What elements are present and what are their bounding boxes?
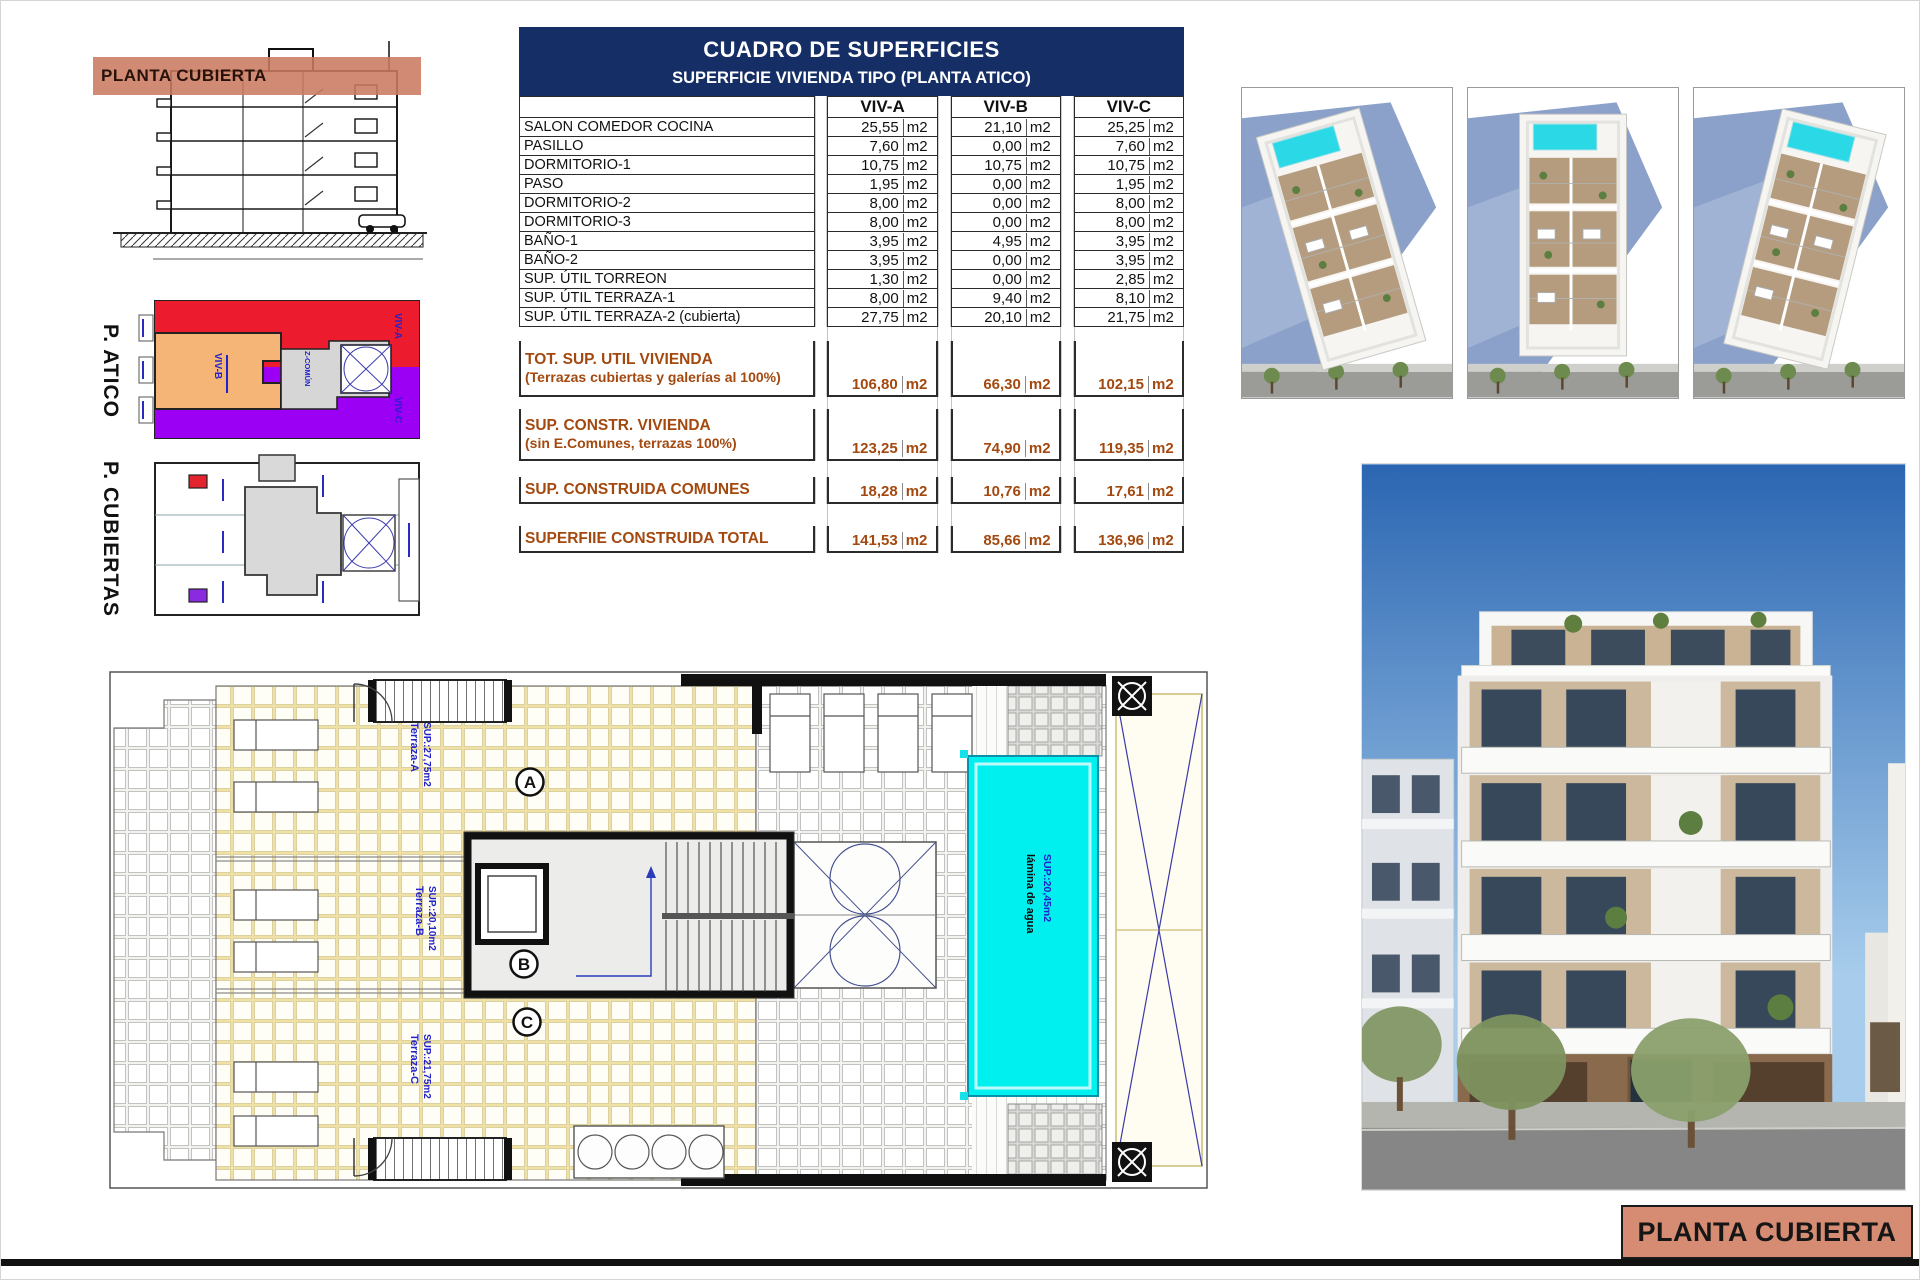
summary-value-viv-c: 102,15m2 — [1074, 341, 1184, 397]
summary-value-viv-c: 136,96m2 — [1074, 526, 1184, 553]
row-value-viv-a: 3,95m2 — [827, 232, 937, 251]
column-header-viv-a: VIV-A — [827, 96, 937, 118]
row-value-viv-a: 3,95m2 — [827, 251, 937, 270]
row-label: DORMITORIO-3 — [519, 213, 815, 232]
stair-top — [368, 680, 512, 722]
sidewalk — [1362, 1102, 1905, 1130]
row-value-viv-b: 0,00m2 — [951, 175, 1061, 194]
facade-render-art — [1362, 464, 1905, 1190]
summary-value-viv-b: 10,76m2 — [951, 477, 1061, 504]
table-row: SALON COMEDOR COCINA25,55m221,10m225,25m… — [519, 118, 1184, 137]
row-value-viv-a: 8,00m2 — [827, 213, 937, 232]
table-row: DORMITORIO-38,00m20,00m28,00m2 — [519, 213, 1184, 232]
summary-label: SUP. CONSTRUIDA COMUNES — [519, 477, 815, 504]
row-value-viv-b: 21,10m2 — [951, 118, 1061, 137]
terraza-a-name: Terraza-A — [408, 722, 420, 772]
section-drawing: PLANTA CUBIERTA — [93, 29, 433, 279]
row-value-viv-c: 21,75m2 — [1074, 308, 1184, 327]
summary-value-viv-a: 141,53m2 — [827, 526, 937, 553]
row-value-viv-b: 0,00m2 — [951, 270, 1061, 289]
row-label: SUP. ÚTIL TERRAZA-1 — [519, 289, 815, 308]
letter-a: A — [524, 773, 536, 792]
summary-value-viv-c: 119,35m2 — [1074, 409, 1184, 461]
table-row: DORMITORIO-28,00m20,00m28,00m2 — [519, 194, 1184, 213]
bottom-rule — [1, 1259, 1920, 1266]
keyplan-atico-art: VIV-A VIV-B VIV-C Z-COMÚN — [127, 297, 433, 445]
sheet-title-box: PLANTA CUBIERTA — [1621, 1205, 1913, 1259]
table-header-row: VIV-AVIV-BVIV-C — [519, 96, 1184, 118]
row-value-viv-c: 3,95m2 — [1074, 232, 1184, 251]
row-value-viv-a: 8,00m2 — [827, 194, 937, 213]
table-row: SUP. ÚTIL TERRAZA-18,00m29,40m28,10m2 — [519, 289, 1184, 308]
summary-label: SUPERFIIE CONSTRUIDA TOTAL — [519, 526, 815, 553]
table-summary-row: TOT. SUP. UTIL VIVIENDA(Terrazas cubiert… — [519, 341, 1184, 397]
terraza-a-sup: SUP.:27,75m2 — [421, 722, 432, 787]
summary-value-viv-b: 66,30m2 — [951, 341, 1061, 397]
row-value-viv-c: 2,85m2 — [1074, 270, 1184, 289]
row-label: DORMITORIO-1 — [519, 156, 815, 175]
table-row: PASILLO7,60m20,00m27,60m2 — [519, 137, 1184, 156]
row-label: PASO — [519, 175, 815, 194]
table-summary-row: SUP. CONSTRUIDA COMUNES18,28m210,76m217,… — [519, 477, 1184, 504]
table-title: CUADRO DE SUPERFICIES — [519, 33, 1184, 69]
keyplan-cubiertas-art — [127, 453, 433, 625]
column-header-viv-b: VIV-B — [951, 96, 1061, 118]
row-value-viv-b: 0,00m2 — [951, 194, 1061, 213]
table-row: BAÑO-13,95m24,95m23,95m2 — [519, 232, 1184, 251]
row-value-viv-c: 8,10m2 — [1074, 289, 1184, 308]
row-value-viv-a: 27,75m2 — [827, 308, 937, 327]
roof-drain-bottom — [1112, 1142, 1152, 1182]
row-value-viv-c: 7,60m2 — [1074, 137, 1184, 156]
road — [1362, 1128, 1905, 1190]
summary-label: TOT. SUP. UTIL VIVIENDA(Terrazas cubiert… — [519, 341, 815, 397]
pool-name: lámina de agua — [1024, 854, 1036, 934]
column-header-viv-c: VIV-C — [1074, 96, 1184, 118]
row-label: BAÑO-1 — [519, 232, 815, 251]
row-label: PASILLO — [519, 137, 815, 156]
letter-b: B — [518, 955, 530, 974]
summary-label: SUP. CONSTR. VIVIENDA(sin E.Comunes, ter… — [519, 409, 815, 461]
row-label: BAÑO-2 — [519, 251, 815, 270]
table-spacer — [519, 327, 1184, 341]
pool-sup: SUP.:20,45m2 — [1041, 854, 1053, 922]
zone-label-viv-a: VIV-A — [392, 313, 403, 339]
roof-render-3 — [1693, 87, 1905, 399]
roof-drain-top — [1112, 676, 1152, 716]
stair-bottom — [368, 1138, 512, 1180]
row-label: DORMITORIO-2 — [519, 194, 815, 213]
row-value-viv-b: 0,00m2 — [951, 251, 1061, 270]
floor-1 — [1462, 682, 1831, 774]
terraza-b-name: Terraza-B — [413, 886, 425, 936]
sheet-title-label: PLANTA CUBIERTA — [1638, 1217, 1897, 1248]
table-summary-row: SUP. CONSTR. VIVIENDA(sin E.Comunes, ter… — [519, 409, 1184, 461]
table-spacer — [519, 397, 1184, 409]
row-value-viv-b: 4,95m2 — [951, 232, 1061, 251]
terraza-c-sup: SUP.:21,75m2 — [421, 1034, 432, 1099]
section-band-label: PLANTA CUBIERTA — [101, 66, 267, 86]
row-value-viv-a: 8,00m2 — [827, 289, 937, 308]
roof-floorplan: Terraza-A SUP.:27,75m2 Terraza-B SUP.:20… — [106, 664, 1211, 1196]
summary-value-viv-c: 17,61m2 — [1074, 477, 1184, 504]
roof-floorplan-art: Terraza-A SUP.:27,75m2 Terraza-B SUP.:20… — [106, 664, 1211, 1196]
planters — [574, 1126, 724, 1178]
plan-sheet: PLANTA CUBIERTA P. ATICO VIV-A VIV-B — [0, 0, 1920, 1280]
terraza-b-sup: SUP.:20,10m2 — [426, 886, 437, 951]
uncovered-terrace-strip — [114, 700, 216, 1160]
table-summary-row: SUPERFIIE CONSTRUIDA TOTAL141,53m285,66m… — [519, 526, 1184, 553]
row-value-viv-b: 9,40m2 — [951, 289, 1061, 308]
row-value-viv-a: 1,95m2 — [827, 175, 937, 194]
row-label: SALON COMEDOR COCINA — [519, 118, 815, 137]
table-header-empty — [519, 96, 815, 118]
row-value-viv-c: 8,00m2 — [1074, 213, 1184, 232]
surface-table: CUADRO DE SUPERFICIES SUPERFICIE VIVIEND… — [519, 27, 1184, 553]
zone-label-comun: Z-COMÚN — [303, 351, 312, 386]
table-spacer — [519, 504, 1184, 526]
section-highlight-band: PLANTA CUBIERTA — [93, 57, 421, 95]
row-value-viv-c: 1,95m2 — [1074, 175, 1184, 194]
table-subtitle: SUPERFICIE VIVIENDA TIPO (PLANTA ATICO) — [519, 69, 1184, 88]
row-label: SUP. ÚTIL TORREON — [519, 270, 815, 289]
roof-render-2 — [1467, 87, 1679, 399]
row-value-viv-a: 25,55m2 — [827, 118, 937, 137]
table-row: SUP. ÚTIL TORREON1,30m20,00m22,85m2 — [519, 270, 1184, 289]
roof-renders — [1241, 87, 1905, 399]
keyplan-cubiertas: P. CUBIERTAS — [93, 453, 433, 625]
row-value-viv-b: 10,75m2 — [951, 156, 1061, 175]
terraza-c-name: Terraza-C — [408, 1034, 420, 1084]
row-value-viv-b: 0,00m2 — [951, 137, 1061, 156]
summary-value-viv-b: 85,66m2 — [951, 526, 1061, 553]
row-value-viv-a: 10,75m2 — [827, 156, 937, 175]
row-value-viv-c: 3,95m2 — [1074, 251, 1184, 270]
floor-2 — [1462, 775, 1831, 867]
table-row: BAÑO-23,95m20,00m23,95m2 — [519, 251, 1184, 270]
keyplan-cubiertas-title: P. CUBIERTAS — [93, 453, 127, 625]
summary-value-viv-a: 18,28m2 — [827, 477, 937, 504]
roof-render-1 — [1241, 87, 1453, 399]
row-value-viv-c: 8,00m2 — [1074, 194, 1184, 213]
table-body: VIV-AVIV-BVIV-CSALON COMEDOR COCINA25,55… — [519, 96, 1184, 553]
elevator-symbol — [341, 345, 391, 393]
floor-3 — [1462, 869, 1831, 961]
summary-value-viv-a: 106,80m2 — [827, 341, 937, 397]
facade-render — [1361, 463, 1906, 1191]
summary-value-viv-a: 123,25m2 — [827, 409, 937, 461]
zone-label-viv-c: VIV-C — [392, 397, 403, 423]
summary-value-viv-b: 74,90m2 — [951, 409, 1061, 461]
row-value-viv-b: 0,00m2 — [951, 213, 1061, 232]
skylights — [794, 842, 936, 988]
row-value-viv-b: 20,10m2 — [951, 308, 1061, 327]
pool: lámina de agua SUP.:20,45m2 — [960, 750, 1098, 1100]
row-value-viv-c: 10,75m2 — [1074, 156, 1184, 175]
row-value-viv-a: 1,30m2 — [827, 270, 937, 289]
keyplan-atico: P. ATICO VIV-A VIV-B VIV-C Z-COMÚN — [93, 297, 433, 445]
table-row: PASO1,95m20,00m21,95m2 — [519, 175, 1184, 194]
row-value-viv-a: 7,60m2 — [827, 137, 937, 156]
row-value-viv-c: 25,25m2 — [1074, 118, 1184, 137]
elevator-symbol — [343, 515, 395, 571]
row-label: SUP. ÚTIL TERRAZA-2 (cubierta) — [519, 308, 815, 327]
zone-label-viv-b: VIV-B — [212, 353, 223, 379]
table-row: SUP. ÚTIL TERRAZA-2 (cubierta)27,75m220,… — [519, 308, 1184, 327]
table-spacer — [519, 461, 1184, 477]
keyplan-atico-title: P. ATICO — [93, 297, 127, 445]
letter-c: C — [521, 1013, 533, 1032]
braced-strip — [1116, 694, 1202, 1166]
table-title-band: CUADRO DE SUPERFICIES SUPERFICIE VIVIEND… — [519, 27, 1184, 96]
table-row: DORMITORIO-110,75m210,75m210,75m2 — [519, 156, 1184, 175]
